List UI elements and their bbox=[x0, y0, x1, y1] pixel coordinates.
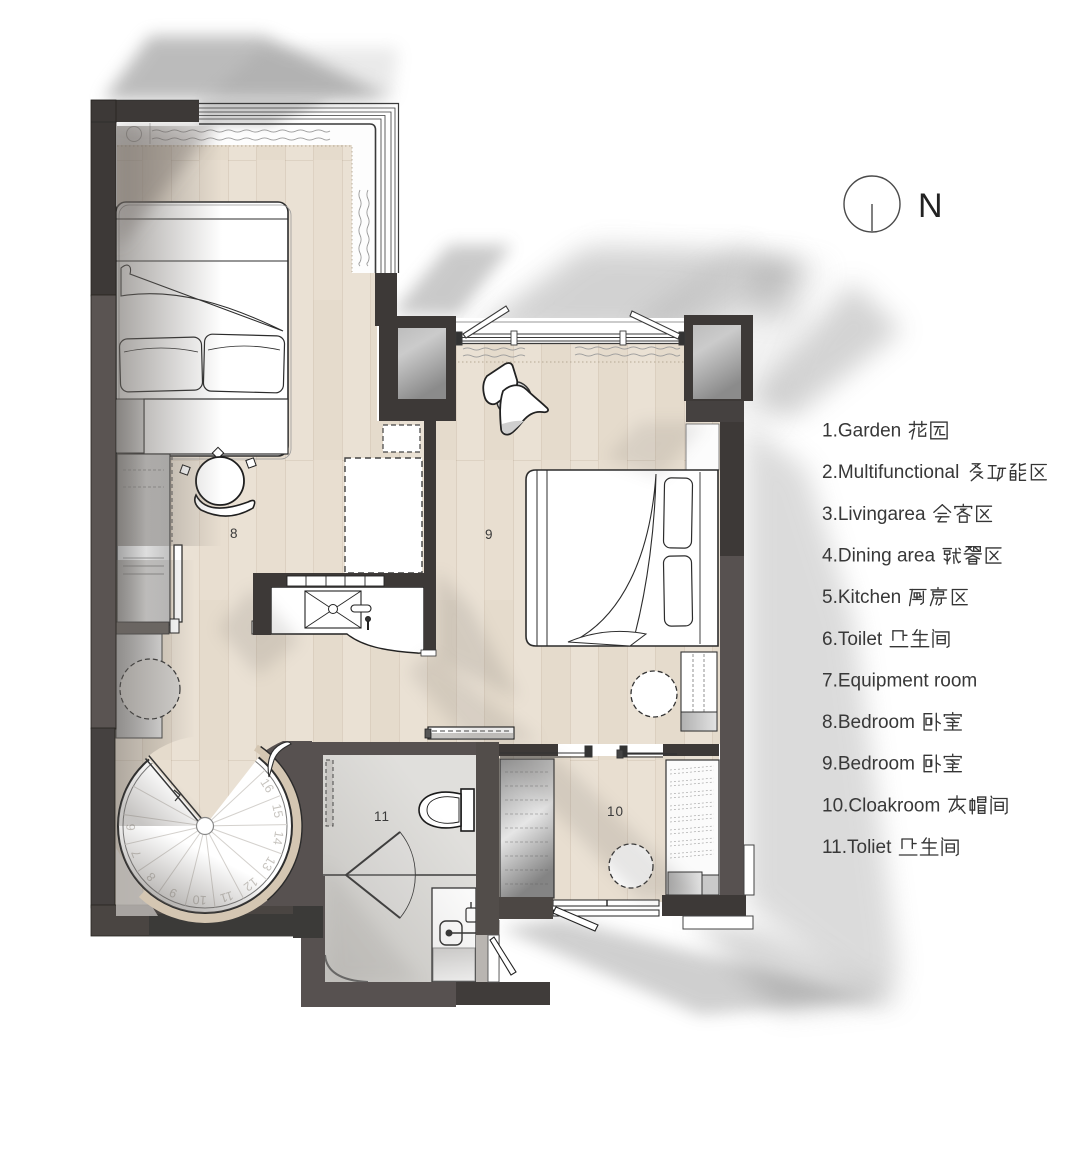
svg-text:N: N bbox=[918, 187, 943, 225]
svg-text:5.Kitchen: 5.Kitchen bbox=[822, 587, 901, 608]
svg-text:4.Dining area: 4.Dining area bbox=[822, 546, 935, 567]
svg-text:6.Toilet: 6.Toilet bbox=[822, 629, 883, 650]
svg-text:9: 9 bbox=[485, 527, 494, 542]
svg-text:15: 15 bbox=[269, 803, 286, 820]
svg-text:7.Equipment room: 7.Equipment room bbox=[822, 670, 977, 691]
svg-text:11.Toliet: 11.Toliet bbox=[822, 837, 892, 858]
svg-text:10.Cloakroom: 10.Cloakroom bbox=[822, 795, 940, 816]
svg-text:8.Bedroom: 8.Bedroom bbox=[822, 712, 915, 733]
svg-text:3.Livingarea: 3.Livingarea bbox=[822, 504, 926, 525]
svg-text:2.Multifunctional: 2.Multifunctional bbox=[822, 462, 959, 483]
svg-text:1.Garden: 1.Garden bbox=[822, 421, 901, 442]
svg-text:9.Bedroom: 9.Bedroom bbox=[822, 754, 915, 775]
svg-text:11: 11 bbox=[374, 809, 390, 824]
svg-text:8: 8 bbox=[230, 526, 239, 541]
svg-text:10: 10 bbox=[607, 804, 624, 819]
